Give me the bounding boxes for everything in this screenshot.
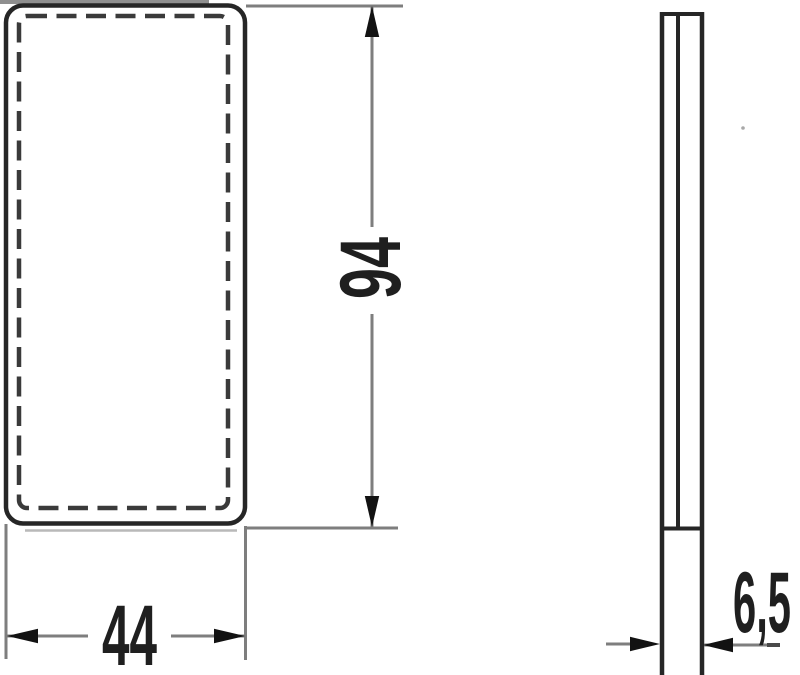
dim-depth-arrowhead-right [630,637,660,651]
reflector-dimension-drawing: 94 44 6,5 [0,0,800,675]
dim-height-arrowhead-up [365,6,379,37]
dim-width-arrowhead-right [214,629,245,643]
dim-height-arrowhead-down [365,496,379,527]
front-view [6,6,245,524]
dim-depth-label: 6,5 [733,555,791,651]
dim-depth-arrowhead-left [703,638,733,652]
side-view [660,12,704,675]
front-outline [6,6,245,524]
dim-width-arrowhead-left [7,629,38,643]
dim-height: 94 [246,6,419,528]
dim-depth: 6,5 [606,555,791,652]
technical-drawing-canvas: 94 44 6,5 [0,0,800,675]
dim-width: 44 [6,524,246,675]
dim-height-label: 94 [323,237,419,299]
scan-speck [741,126,745,130]
dim-width-label: 44 [102,588,157,675]
reflective-face-dashed-outline [19,16,228,508]
